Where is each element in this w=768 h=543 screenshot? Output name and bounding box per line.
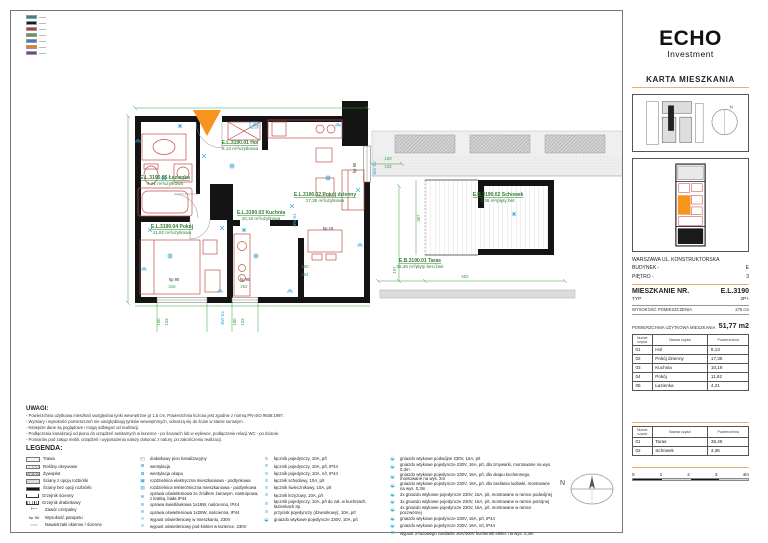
gallery-walkway bbox=[372, 131, 625, 176]
legend-symbol-icon bbox=[138, 524, 147, 530]
legend-column-3: łącznik pojedynczy, 10A, p/tłącznik poje… bbox=[262, 456, 386, 524]
sill-height-text: hp 19 bbox=[323, 226, 334, 231]
outdoor-number-cell: 01 bbox=[633, 437, 653, 446]
legend-section: LEGENDA: TrawaRośliny okrywoweŻywopłotŚc… bbox=[26, 445, 586, 533]
outdoor-table: Numer części Nazwa części Powierzchnia 0… bbox=[632, 426, 749, 456]
site-plan-thumbnail: N bbox=[632, 94, 749, 152]
legend-item-label: Grzejnik ścienny bbox=[42, 494, 74, 499]
legend-symbol-icon bbox=[262, 502, 271, 508]
legend-item: wypust oświetleniowy pod kinkiet w łazie… bbox=[138, 524, 260, 531]
legend-item: Nawietrzaki okienne / ścienne bbox=[26, 522, 136, 529]
sill-height-text: hp 90 bbox=[240, 277, 251, 282]
corner-key-line bbox=[39, 23, 46, 24]
legend-item: oprawa świetlówkowa 1x18W, naścienna, IP… bbox=[138, 502, 260, 509]
legend-item: wypust 3-fazowego zasilania 16A/400V kuc… bbox=[388, 530, 553, 537]
room-label-area: 10,16 m²/użytkowa bbox=[242, 216, 281, 221]
legend-item: dodatkowy pion kanalizacyjny bbox=[138, 456, 260, 463]
legend-item-label: gniazdo wtykowe pojedyncze 230V, 16A, p/… bbox=[400, 482, 553, 491]
light-symbol-icon bbox=[254, 254, 258, 258]
table-row: 01 Hol 8,13 bbox=[633, 345, 749, 354]
outdoor-table-header: Numer części bbox=[633, 426, 653, 437]
corner-key-row bbox=[26, 51, 46, 55]
legend-symbol-icon bbox=[138, 494, 147, 500]
legend-item: łącznik pojedynczy, 10A, n/t, IP44 bbox=[262, 471, 386, 478]
table-row: 03 Kuchnia 10,16 bbox=[633, 363, 749, 372]
legend-item-label: Grzejnik drabinkowy bbox=[42, 501, 81, 506]
corner-key-line bbox=[39, 29, 46, 30]
legend-symbol-icon bbox=[138, 464, 147, 470]
legend-item-label: łącznik świecznikowy, 10A, p/t bbox=[274, 486, 331, 491]
legend-item: wypust oświetleniowy w mieszkaniu, 230V bbox=[138, 517, 260, 524]
legend-item-label: oprawa oświetleniowa 1x26W, naścienna, I… bbox=[150, 511, 240, 516]
project-address: WARSZAWA UL. KONSTRUKTORSKA BUDYNEK -E P… bbox=[632, 256, 749, 282]
legend-item: przycisk pojedynczy (dzwonkowy), 10A, p/… bbox=[262, 509, 386, 516]
legend-item: łącznik pojedynczy, 10A, p/t do zał. w k… bbox=[262, 500, 386, 509]
legend-column-1: TrawaRośliny okrywoweŻywopłotŚciany z op… bbox=[26, 456, 136, 529]
apartment-type: 2P+ bbox=[740, 297, 749, 302]
vent-symbol-icon bbox=[242, 228, 247, 233]
legend-item: łącznik pojedynczy, 10A, p/t bbox=[262, 456, 386, 463]
rooms-table-header: Powierzchnia bbox=[708, 334, 749, 345]
legend-symbol-icon bbox=[262, 471, 271, 477]
vent-symbol-icon bbox=[178, 124, 183, 129]
address-line: WARSZAWA UL. KONSTRUKTORSKA bbox=[632, 256, 749, 265]
corner-key-swatch bbox=[26, 33, 37, 37]
sill-height-text: hp 90 bbox=[169, 277, 180, 282]
path-strip bbox=[380, 290, 575, 298]
legend-item-label: łącznik krzyżowy, 10A, p/t bbox=[274, 494, 323, 499]
legend-symbol-icon bbox=[26, 522, 42, 528]
room-label-area: 8,13 m²/użytkowa bbox=[222, 146, 258, 151]
legend-item: gniazdo wtykowe pojedyncze 230V, 10A, p/… bbox=[262, 517, 386, 524]
corner-key-row bbox=[26, 39, 46, 43]
room-name-cell: Kuchnia bbox=[652, 363, 708, 372]
dimension-text: 100 bbox=[301, 264, 309, 269]
window-code-text: BW-02 bbox=[372, 161, 377, 175]
room-label-area: 17,35 m²/użytkowa bbox=[306, 198, 345, 203]
sill-height-text: hp 90 bbox=[352, 162, 357, 173]
scale-tick-label: 3 bbox=[715, 472, 718, 477]
room-number-cell: 05 bbox=[633, 381, 653, 390]
legend-item-label: łącznik pojedynczy, 10A, p/t bbox=[274, 457, 327, 462]
room-name-cell: Pokój bbox=[652, 372, 708, 381]
legend-item-label: gniazdo wtykowe podwójne 230V, 16A, p/t bbox=[400, 457, 480, 462]
scale-bar: 01234m bbox=[632, 472, 749, 482]
legend-item-label: Ściany bez opcji rozbiórki bbox=[43, 486, 91, 491]
corner-key-row bbox=[26, 27, 46, 31]
brand-logo: ECHO Investment bbox=[632, 30, 749, 59]
legend-symbol-icon bbox=[388, 531, 397, 537]
legend-symbol-icon bbox=[26, 508, 42, 514]
legend-item-label: dodatkowy pion kanalizacyjny bbox=[150, 457, 207, 462]
room-label-area: 35,45 m²/płyty bet./żwir bbox=[396, 264, 444, 269]
dimension-text: 318 bbox=[168, 284, 176, 289]
legend-symbol-icon bbox=[138, 457, 147, 463]
light-symbol-icon bbox=[230, 164, 234, 168]
legend-item-label: Trawa bbox=[43, 457, 55, 462]
apartment-number: E.L.3190 bbox=[721, 288, 749, 295]
rooms-table: Numer części Nazwa części Powierzchnia 0… bbox=[632, 334, 749, 391]
legend-item-label: łącznik pojedynczy, 10A, n/t, IP44 bbox=[274, 472, 338, 477]
legend-item: Żywopłot bbox=[26, 471, 136, 478]
legend-symbol-icon bbox=[388, 474, 397, 480]
legend-symbol-icon bbox=[138, 510, 147, 516]
legend-symbol-icon bbox=[26, 472, 40, 477]
corner-key-swatch bbox=[26, 45, 37, 49]
legend-item: oprawa oświetleniowa 1x26W, naścienna, I… bbox=[138, 509, 260, 516]
legend-symbol-icon bbox=[26, 487, 40, 492]
dimension-text: 133 bbox=[164, 318, 169, 326]
legend-item: łącznik schodowy, 10A, p/t bbox=[262, 478, 386, 485]
legend-item-label: wypust oświetleniowy w mieszkaniu, 230V bbox=[150, 518, 230, 523]
north-arrow: N bbox=[552, 462, 624, 514]
legend-item: oprawa oświetleniowa ze źródłem żarowym,… bbox=[138, 492, 260, 501]
outdoor-name-cell: Taras bbox=[652, 437, 708, 446]
legend-symbol-icon bbox=[262, 517, 271, 523]
dimension-text: 252 bbox=[240, 284, 248, 289]
legend-item-label: 2x gniazdo wtykowe pojedyncze 230V, 16A,… bbox=[400, 493, 552, 498]
legend-item: Grzejnik drabinkowy bbox=[26, 500, 136, 507]
dimension-text: 100 bbox=[384, 156, 392, 161]
washbasin bbox=[153, 140, 175, 155]
legend-item: Ściany bez opcji rozbiórki bbox=[26, 485, 136, 492]
socket-symbol-icon bbox=[287, 289, 293, 292]
legend-symbol-icon bbox=[26, 515, 42, 521]
legend-item: Trawa bbox=[26, 456, 136, 463]
legend-symbol-icon bbox=[26, 465, 40, 470]
table-row: 04 Pokój 11,92 bbox=[633, 372, 749, 381]
dimension-text: 100 bbox=[232, 318, 237, 326]
floor-label: PIĘTRO - bbox=[632, 273, 654, 282]
apartment-number-label: MIESZKANIE NR. bbox=[632, 288, 689, 295]
legend-symbol-icon bbox=[262, 464, 271, 470]
legend-symbol-icon bbox=[26, 457, 40, 462]
floor-plan: E.L.3190.01 Hol8,13 m²/użytkowaE.L.3190.… bbox=[120, 78, 625, 360]
dimension-text: 150 bbox=[156, 318, 161, 326]
legend-symbol-icon bbox=[26, 479, 40, 484]
legend-item-label: wypust oświetleniowy pod kinkiet w łazie… bbox=[150, 525, 247, 530]
legend-item-label: łącznik pojedynczy, 10A, p/t, IP44 bbox=[274, 465, 338, 470]
scale-tick-label: 0 bbox=[632, 472, 635, 477]
building-value: E bbox=[746, 264, 749, 273]
scale-tick-label: 4m bbox=[743, 472, 749, 477]
dimension-text: 552 bbox=[461, 274, 469, 279]
legend-item-label: gniazdo wtykowe pojedyncze 230V, 16A, n/… bbox=[400, 524, 495, 529]
legend-symbol-icon bbox=[26, 501, 39, 505]
dimension-text: 307 bbox=[416, 214, 421, 222]
legend-item: wentylacja okapu bbox=[138, 471, 260, 478]
legend-item-label: rozdzielnica teletechniczna mieszkaniowa… bbox=[150, 486, 256, 491]
legend-item-label: wentylacja okapu bbox=[150, 472, 183, 477]
armchair bbox=[316, 148, 332, 162]
outdoor-area-cell: 3,36 bbox=[708, 446, 749, 455]
legend-column-2: dodatkowy pion kanalizacyjnywentylacjawe… bbox=[138, 456, 260, 531]
corner-key-swatch bbox=[26, 27, 37, 31]
svg-text:N: N bbox=[729, 104, 733, 110]
legend-item-label: Żywopłot bbox=[43, 472, 60, 477]
room-number-cell: 03 bbox=[633, 363, 653, 372]
rooms-table-header: Numer części bbox=[633, 334, 653, 345]
switch-symbol-icon bbox=[202, 154, 206, 158]
legend-item-label: przycisk pojedynczy (dzwonkowy), 10A, p/… bbox=[274, 511, 356, 516]
ceiling-height-label: WYSOKOŚĆ POMIESZCZENIA bbox=[632, 307, 692, 312]
corner-key-row bbox=[26, 33, 46, 37]
ceiling-height-value: 275 cm bbox=[735, 307, 749, 312]
legend-symbol-icon bbox=[262, 493, 271, 499]
room-area-cell: 11,92 bbox=[708, 372, 749, 381]
room-number-cell: 02 bbox=[633, 354, 653, 363]
legend-item-label: gniazdo wtykowe pojedyncze 230V, 16A, p/… bbox=[400, 517, 495, 522]
table-row: 01 Taras 35,45 bbox=[633, 437, 749, 446]
table-row: 05 Łazienka 4,21 bbox=[633, 381, 749, 390]
usable-area-value: 51,77 m2 bbox=[719, 321, 749, 330]
room-area-cell: 4,21 bbox=[708, 381, 749, 390]
legend-symbol-icon bbox=[388, 508, 397, 514]
legend-item: 4x gniazdo wtykowe pojedyncze 230V, 16A,… bbox=[388, 506, 553, 515]
corner-key-swatch bbox=[26, 51, 37, 55]
drawing-sheet: E.L.3190.01 Hol8,13 m²/użytkowaE.L.3190.… bbox=[0, 0, 768, 543]
corner-key-line bbox=[39, 41, 46, 42]
legend-symbol-icon bbox=[262, 457, 271, 463]
legend-symbol-icon bbox=[388, 516, 397, 522]
socket-symbol-icon bbox=[357, 243, 363, 246]
room-name-cell: Hol bbox=[652, 345, 708, 354]
north-label: N bbox=[560, 480, 565, 487]
legend-item: rozdzielnica elektryczna mieszkaniowa - … bbox=[138, 478, 260, 485]
room-area-cell: 17,35 bbox=[708, 354, 749, 363]
legend-item: gniazdo wtykowe pojedyncze 230V, 16A, p/… bbox=[388, 516, 553, 523]
legend-item-label: Ściany z opcją rozbiórki bbox=[43, 479, 88, 484]
corner-key-line bbox=[39, 53, 46, 54]
legend-item-label: gniazdo wtykowe pojedyncze 230V, 10A, p/… bbox=[274, 518, 358, 523]
legend-symbol-icon bbox=[388, 484, 397, 490]
corner-color-key bbox=[26, 15, 46, 55]
brand-name: ECHO bbox=[659, 30, 722, 49]
legend-symbol-icon bbox=[388, 492, 397, 498]
notes-section: UWAGI: - Powierzchnia użytkowa mieszkań … bbox=[26, 406, 466, 442]
apartment-type-label: TYP bbox=[632, 297, 641, 302]
legend-title: LEGENDA: bbox=[26, 445, 586, 452]
dining-table bbox=[308, 230, 342, 252]
legend-item: Grzejnik ścienny bbox=[26, 492, 136, 499]
sheet-title: KARTA MIESZKANIA bbox=[632, 75, 749, 84]
legend-symbol-icon bbox=[262, 479, 271, 485]
legend-item-label: oprawa świetlówkowa 1x18W, naścienna, IP… bbox=[150, 503, 239, 508]
legend-item-label: łącznik pojedynczy, 10A, p/t do zał. w k… bbox=[274, 500, 386, 509]
corner-key-line bbox=[39, 35, 46, 36]
legend-column-4: gniazdo wtykowe podwójne 230V, 16A, p/tg… bbox=[388, 456, 553, 538]
legend-symbol-icon bbox=[388, 524, 397, 530]
legend-symbol-icon bbox=[138, 503, 147, 509]
legend-symbol-icon bbox=[138, 479, 147, 485]
legend-item-label: Wysokość parapetu bbox=[45, 516, 83, 521]
legend-symbol-icon bbox=[388, 457, 397, 463]
notes-title: UWAGI: bbox=[26, 406, 466, 412]
legend-item-label: 4x gniazdo wtykowe pojedyncze 230V, 16A,… bbox=[400, 506, 553, 515]
room-area-cell: 10,16 bbox=[708, 363, 749, 372]
sofa bbox=[342, 170, 364, 210]
legend-symbol-icon bbox=[26, 494, 39, 498]
desk bbox=[205, 270, 220, 292]
corner-key-line bbox=[39, 17, 46, 18]
legend-symbol-icon bbox=[388, 465, 397, 471]
switch-symbol-icon bbox=[220, 226, 224, 230]
corner-key-row bbox=[26, 45, 46, 49]
legend-item-label: rozdzielnica elektryczna mieszkaniowa - … bbox=[150, 479, 251, 484]
legend-item: gniazdo wtykowe pojedyncze 230V, 16A, p/… bbox=[388, 482, 553, 491]
legend-item: gniazdo wtykowe pojedyncze 230V, 16A, n/… bbox=[388, 523, 553, 530]
legend-item: Ściany z opcją rozbiórki bbox=[26, 478, 136, 485]
corner-key-row bbox=[26, 21, 46, 25]
dimension-text: 204 bbox=[301, 272, 309, 277]
legend-item-label: Zawór czerpalny bbox=[45, 508, 77, 513]
legend-symbol-icon bbox=[262, 486, 271, 492]
legend-item: Wysokość parapetu bbox=[26, 514, 136, 521]
legend-item-label: łącznik schodowy, 10A, p/t bbox=[274, 479, 324, 484]
corner-key-row bbox=[26, 15, 46, 19]
floor-value: 3 bbox=[746, 273, 749, 282]
legend-symbol-icon bbox=[138, 486, 147, 492]
corner-key-swatch bbox=[26, 21, 37, 25]
room-name-cell: Pokój dzienny bbox=[652, 354, 708, 363]
legend-item-label: oprawa oświetleniowa ze źródłem żarowym,… bbox=[150, 492, 260, 501]
site-building-highlight bbox=[668, 105, 674, 130]
dimension-text: 133 bbox=[384, 164, 392, 169]
room-name-cell: Łazienka bbox=[652, 381, 708, 390]
dimension-text: 133 bbox=[240, 318, 245, 326]
legend-item: 2x gniazdo wtykowe pojedyncze 230V, 16A,… bbox=[388, 492, 553, 499]
room-number-cell: 01 bbox=[633, 345, 653, 354]
shaft bbox=[210, 184, 233, 220]
legend-item-label: wentylacja bbox=[150, 465, 170, 470]
legend-item-label: Nawietrzaki okienne / ścienne bbox=[45, 523, 102, 528]
outdoor-table-header: Nazwa części bbox=[652, 426, 708, 437]
legend-symbol-icon bbox=[138, 471, 147, 477]
room-area-cell: 8,13 bbox=[708, 345, 749, 354]
scale-tick-label: 1 bbox=[660, 472, 663, 477]
outdoor-area-cell: 35,45 bbox=[708, 437, 749, 446]
floor-key-plan-thumbnail bbox=[632, 158, 749, 252]
switch-symbol-icon bbox=[290, 204, 294, 208]
legend-item: łącznik świecznikowy, 10A, p/t bbox=[262, 485, 386, 492]
legend-item: łącznik pojedynczy, 10A, p/t, IP44 bbox=[262, 463, 386, 470]
outdoor-number-cell: 02 bbox=[633, 446, 653, 455]
room-label-area: 4,21 m²/użytkowa bbox=[147, 181, 183, 186]
vent-symbol-icon bbox=[512, 212, 517, 217]
table-row: 02 Schowek 3,36 bbox=[633, 446, 749, 455]
brand-subname: Investment bbox=[667, 49, 714, 59]
legend-symbol-icon bbox=[138, 517, 147, 523]
nightstand bbox=[203, 240, 217, 254]
legend-item-label: wypust 3-fazowego zasilania 16A/400V kuc… bbox=[400, 532, 534, 537]
table-row: 02 Pokój dzienny 17,35 bbox=[633, 354, 749, 363]
room-label-area: 3,36 m²/płyty bet. bbox=[480, 198, 515, 203]
key-plan-unit-highlight bbox=[678, 195, 691, 214]
scale-tick-label: 2 bbox=[687, 472, 690, 477]
corner-key-line bbox=[39, 47, 46, 48]
legend-item: wentylacja bbox=[138, 463, 260, 470]
building-label: BUDYNEK - bbox=[632, 264, 659, 273]
outdoor-name-cell: Schowek bbox=[652, 446, 708, 455]
dimension-text: 157 bbox=[392, 266, 397, 274]
window-code-text: BW-03 bbox=[220, 311, 225, 325]
corner-key-swatch bbox=[26, 39, 37, 43]
legend-symbol-icon bbox=[262, 510, 271, 516]
scale-bar-segments bbox=[632, 478, 749, 482]
room-label-area: 11,92 m²/użytkowa bbox=[153, 230, 192, 235]
legend-item-label: 3x gniazdo wtykowe pojedyncze 230V, 16A,… bbox=[400, 500, 549, 505]
legend-item: Zawór czerpalny bbox=[26, 507, 136, 514]
outdoor-table-header: Powierzchnia bbox=[708, 426, 749, 437]
window-code-text: BW-01 bbox=[292, 213, 297, 227]
title-block-panel: ECHO Investment KARTA MIESZKANIA N bbox=[622, 10, 758, 533]
rooms-table-header: Nazwa części bbox=[652, 334, 708, 345]
room-number-cell: 04 bbox=[633, 372, 653, 381]
legend-item-label: Rośliny okrywowe bbox=[43, 465, 77, 470]
usable-area-label: POWIERZCHNIA UŻYTKOWA MIESZKANIA bbox=[632, 325, 715, 330]
legend-item: Rośliny okrywowe bbox=[26, 463, 136, 470]
legend-symbol-icon bbox=[388, 500, 397, 506]
corner-key-swatch bbox=[26, 15, 37, 19]
note-line: - Pomiarów pod zakup mebli, urządzeń i w… bbox=[26, 437, 466, 443]
